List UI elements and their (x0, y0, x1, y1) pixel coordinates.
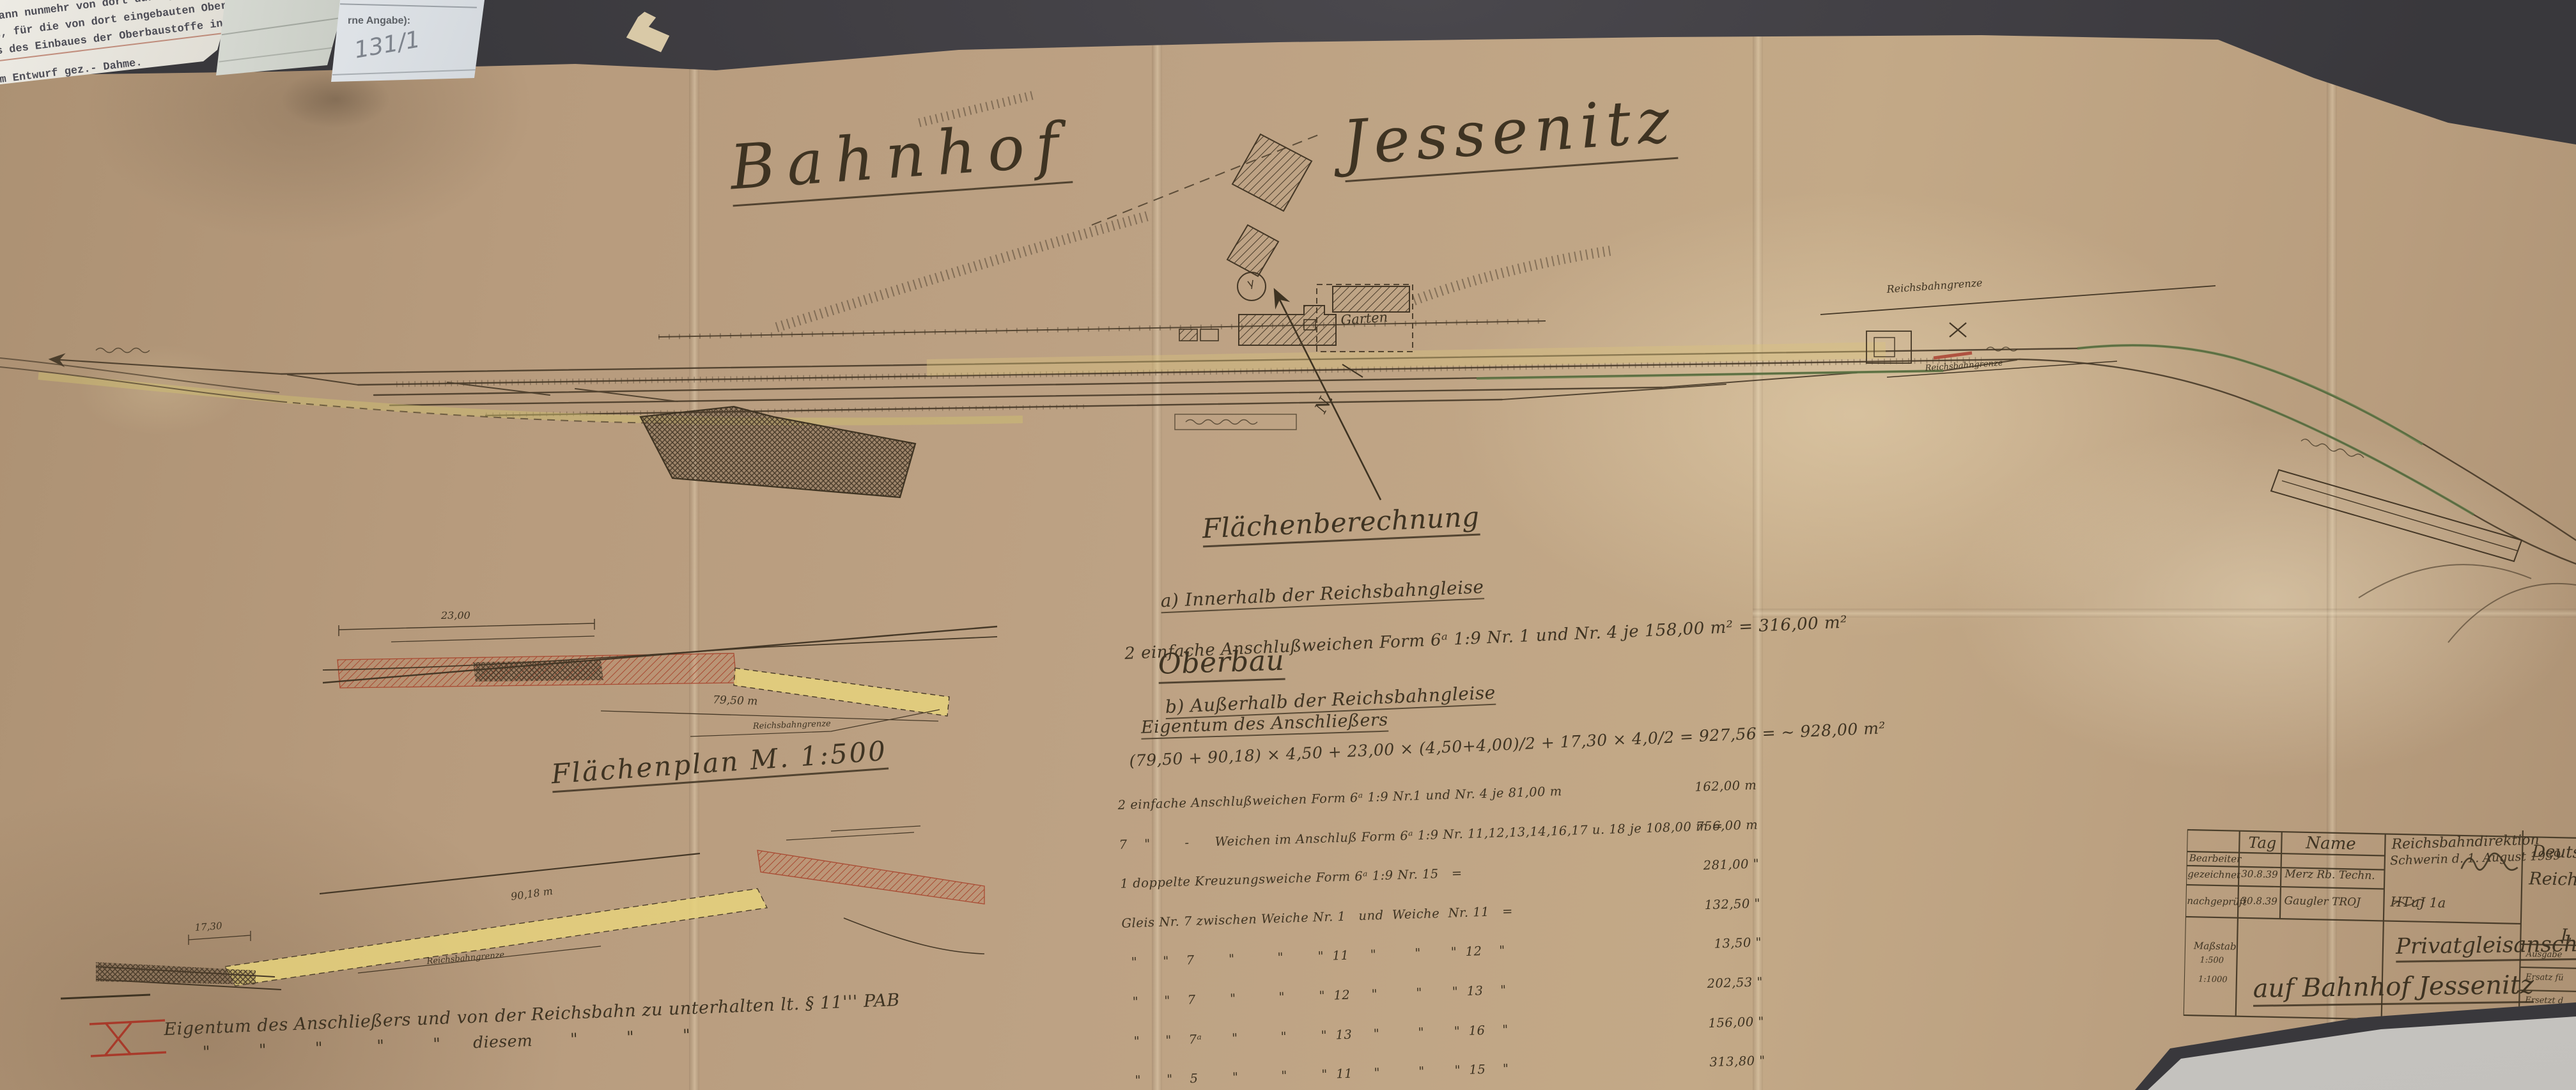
table-row: 1 doppelte Kreuzungsweiche Form 6ᵃ 1:9 N… (1120, 857, 1759, 892)
row-desc: " " 7ᵃ " " " 13 " " " 16 " (1125, 1022, 1509, 1048)
dim-lower-start: 17,30 (194, 920, 223, 933)
row-desc: 7 " - Weichen im Anschluß Form 6ᵃ 1:9 Nr… (1119, 818, 1723, 852)
label-handwritten-number: 131/1 (352, 26, 422, 63)
right-col-fragment: L (2561, 926, 2572, 945)
table-row: " " 5 " " " 11 " " " 15 "313,80 " (1126, 1053, 1765, 1088)
row-date: 30.8.39 (2241, 868, 2278, 880)
row-value: 281,00 " (1703, 857, 1759, 873)
north-label: N. (1311, 391, 1337, 417)
file-code: HTuJ 1a (2390, 894, 2446, 911)
doc-title-2: auf Bahnhof Jessenitz (2253, 970, 2534, 1007)
sheet-crease (222, 17, 342, 35)
subsection-a: a) Innerhalb der Reichsbahngleise (1160, 556, 1940, 613)
row-desc: 1 doppelte Kreuzungsweiche Form 6ᵃ 1:9 N… (1120, 866, 1463, 891)
row-value: 156,00 " (1708, 1014, 1764, 1031)
scale-value-2: 1:1000 (2198, 974, 2228, 985)
oberbau-subheading-wrap: Eigentum des Anschließers (1140, 699, 1755, 740)
right-col-row: Ersatz fü (2526, 972, 2564, 983)
archive-label-card: rne Angabe): 131/1 (331, 0, 487, 84)
detail-drawing-lower (96, 826, 984, 990)
row-desc: Gleis Nr. 7 zwischen Weiche Nr. 1 und We… (1121, 903, 1513, 930)
boundary-label: Reichsbahngrenze (752, 719, 832, 731)
right-col-row: Ausgabe (2526, 949, 2563, 960)
scale-value-1: 1:500 (2200, 955, 2224, 965)
oberbau-heading-wrap: Oberbau (1158, 630, 1753, 684)
row-label: Bearbeiter (2189, 852, 2242, 865)
label-printed-text: rne Angabe): (348, 15, 410, 27)
row-date: 30.8.39 (2240, 895, 2277, 907)
row-name: Merz Rb. Techn. (2285, 868, 2375, 882)
dim-lower-length: 90,18 m (510, 885, 554, 903)
legend-symbol (61, 995, 166, 1056)
boundary-label: Reichsbahngrenze (1886, 277, 1983, 295)
table-row: 7 " - Weichen im Anschluß Form 6ᵃ 1:9 Nr… (1119, 817, 1758, 852)
section-heading: Flächenberechnung (1202, 481, 1937, 547)
oberbau-table: 2 einfache Anschlußweichen Form 6ᵃ 1:9 N… (1117, 754, 1778, 1090)
doc-title-2-wrap: auf Bahnhof Jessenitz (2253, 970, 2534, 1007)
row-value: 132,50 " (1704, 896, 1760, 912)
table-row: " " 7 " " " 11 " " " 12 "13,50 " (1122, 935, 1762, 970)
right-col-fragment: Reichsb (2529, 869, 2576, 890)
row-value: 313,80 " (1709, 1053, 1765, 1070)
oberbau-subheading: Eigentum des Anschließers (1140, 710, 1388, 740)
plan-paper: N. Garten Reichsbahngrenze Reichsbahngre… (0, 0, 2576, 1090)
table-row: 2 einfache Anschlußweichen Form 6ᵃ 1:9 N… (1117, 778, 1757, 813)
row-value: 756,00 m (1696, 817, 1758, 834)
dim-upper-width: 23,00 (440, 609, 470, 621)
label-rule (332, 69, 479, 75)
photo-of-railway-plan: N. Garten Reichsbahngrenze Reichsbahngre… (0, 0, 2576, 1090)
row-label: nachgeprüft (2187, 895, 2247, 908)
massstab-label: Maßstab (2194, 940, 2237, 952)
garten-label: Garten (1340, 309, 1388, 328)
detail-drawing-upper (323, 619, 997, 736)
buildings (1179, 134, 1911, 363)
a-heading: a) Innerhalb der Reichsbahngleise (1160, 576, 1484, 613)
loading-site-sketch (2271, 470, 2576, 642)
table-row: " " 7ᵃ " " " 13 " " " 16 "156,00 " (1125, 1014, 1764, 1049)
oberbau-heading: Oberbau (1158, 644, 1285, 684)
dim-upper-length: 79,50 m (713, 694, 758, 708)
row-desc: 2 einfache Anschlußweichen Form 6ᵃ 1:9 N… (1117, 784, 1562, 813)
row-desc: " " 5 " " " 11 " " " 15 " (1126, 1061, 1509, 1088)
table-row: Gleis Nr. 7 zwischen Weiche Nr. 1 und We… (1121, 896, 1760, 931)
right-col-fragment: Deutsch (2532, 842, 2576, 862)
flaechenberechnung-heading: Flächenberechnung (1202, 501, 1480, 548)
row-name: Gaugler TROJ (2284, 894, 2361, 908)
row-value: 13,50 " (1714, 935, 1762, 951)
row-label: gezeichnet (2187, 868, 2240, 881)
label-rule (340, 3, 477, 8)
row-value: 202,53 " (1707, 974, 1763, 991)
col-header-tag: Tag (2248, 834, 2276, 852)
table-row: " " 7 " " " 12 " " " 13 "202,53 " (1124, 974, 1763, 1009)
oberbau-section: Oberbau Eigentum des Anschließers 2 einf… (1112, 605, 1780, 1090)
row-desc: " " 7 " " " 12 " " " 13 " (1124, 983, 1507, 1009)
col-header-name: Name (2306, 834, 2356, 854)
row-desc: " " 7 " " " 11 " " " 12 " (1122, 943, 1505, 970)
sheet-crease (219, 46, 340, 62)
row-value: 162,00 m (1695, 778, 1757, 795)
